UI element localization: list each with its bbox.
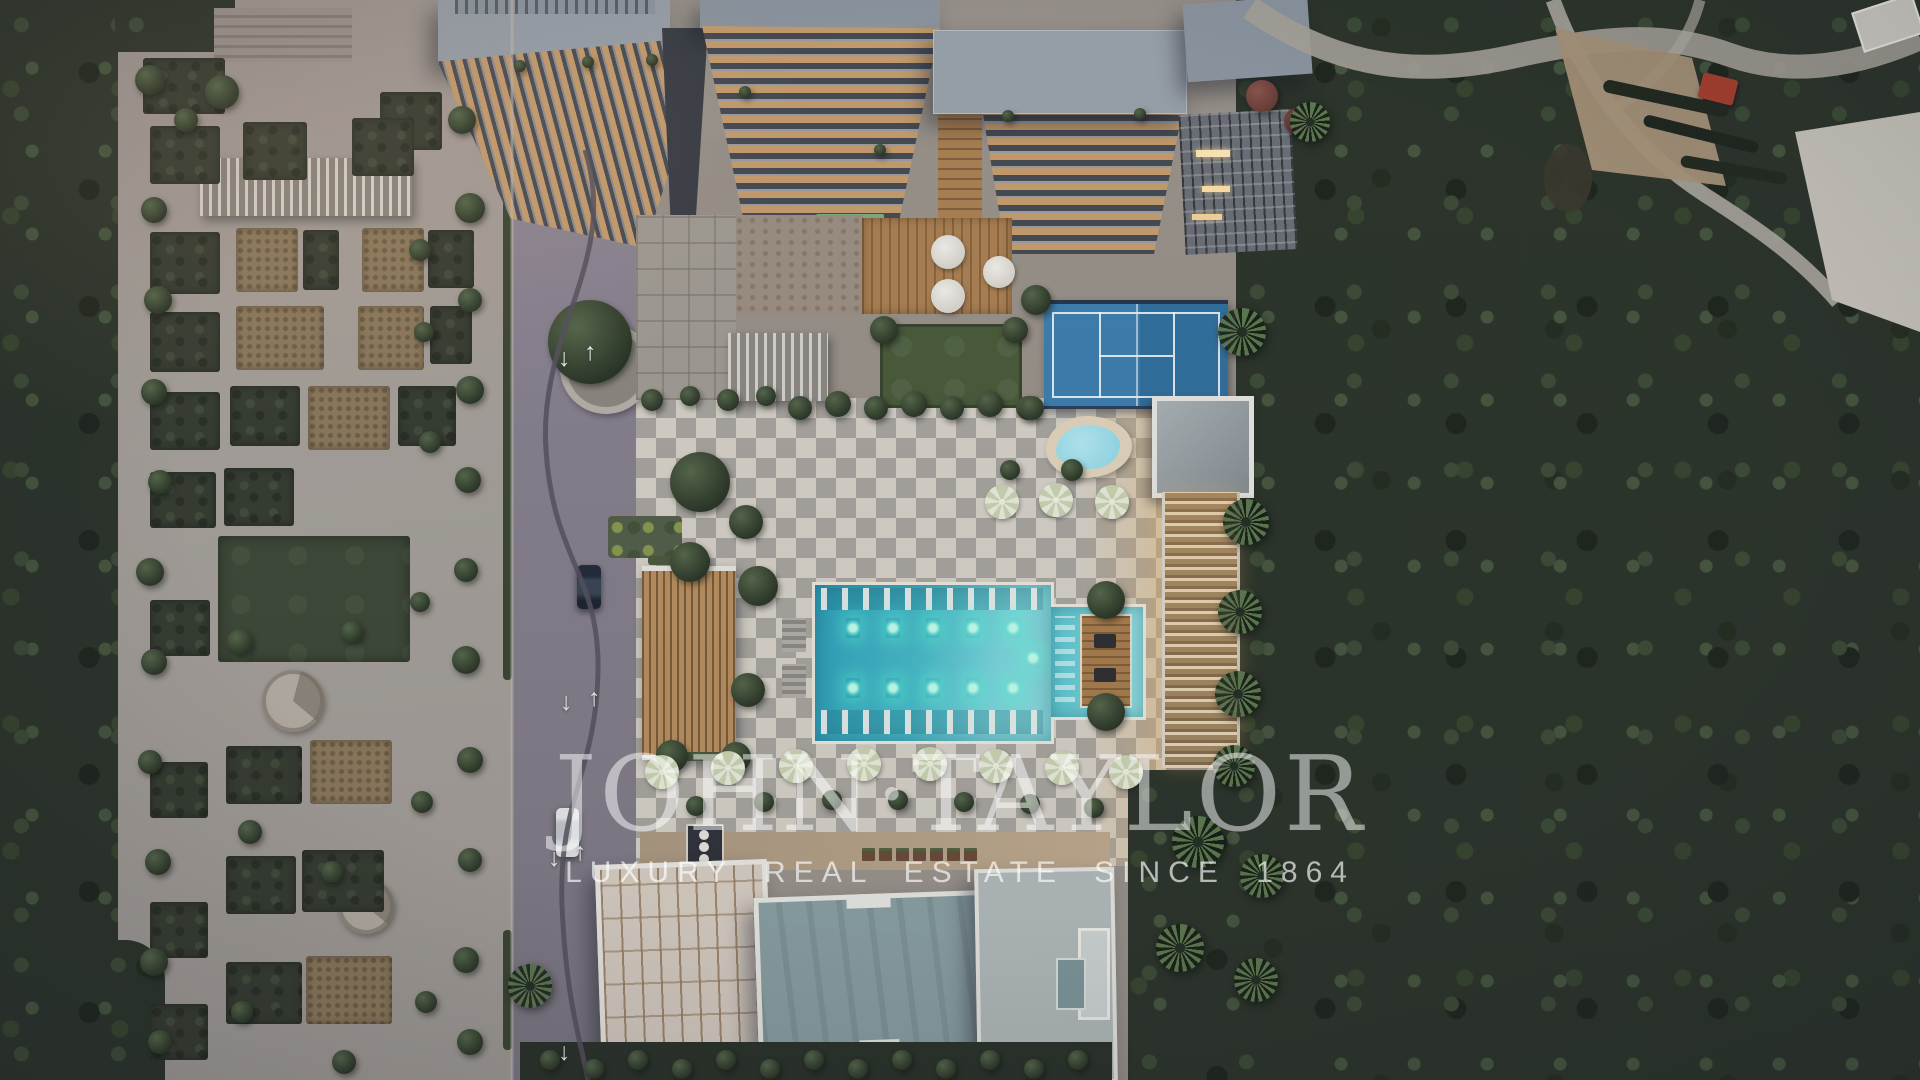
umbrella [985,485,1019,519]
tree [419,431,441,453]
umbrella [779,749,813,783]
planter-bed [150,126,220,184]
tree [680,386,700,406]
tree [453,947,479,973]
tree [458,848,482,872]
palm-tree [1213,745,1255,787]
tree [954,792,974,812]
palm-tree [1218,308,1266,356]
planter-bed [150,232,220,294]
tree [729,505,763,539]
palm-tree [1156,924,1204,972]
hedge-tree [540,1050,560,1070]
tree [1021,285,1051,315]
tree [738,566,778,606]
tree [1084,798,1104,818]
palm-tree [1240,854,1284,898]
hedge-tree [584,1059,604,1079]
aerial-development-photo: ↓↑↓↑↓↑↓ JOHN·TAYLOR LUXURY REAL ESTATE S… [0,0,1920,1080]
balcony-planter [646,54,658,66]
planter-bed [358,306,424,370]
tree [686,796,706,816]
tree [415,991,437,1013]
tree [332,1050,356,1074]
tree [174,108,198,132]
tree [411,791,433,813]
planter-bed [310,740,392,804]
planter-bed [224,468,294,526]
tree [1020,794,1040,814]
planter-bed [226,856,296,914]
tree [788,396,812,420]
tree [414,322,434,342]
landscape-details: ↓↑↓↑↓↑↓ [0,0,1920,1080]
hedge-tree [760,1059,780,1079]
tree [454,558,478,582]
balcony-planter [1134,108,1146,120]
tree [825,391,851,417]
tree [977,391,1003,417]
hedge-tree [716,1050,736,1070]
tree [141,379,167,405]
tree [148,470,172,494]
tree [341,621,363,643]
planter-bed [150,600,210,656]
tree [457,747,483,773]
tree [452,646,480,674]
balcony-planter [514,60,526,72]
road-arrow-marking: ↓ [558,346,578,372]
planter-bed [308,386,390,450]
tree [641,389,663,411]
tree [410,592,430,612]
planter-bed [303,230,339,290]
tree [227,629,253,655]
pool-light [1006,678,1020,698]
tree [1002,317,1028,343]
tree [1020,396,1044,420]
umbrella [979,749,1013,783]
planter-bed [243,122,307,180]
umbrella [645,755,679,789]
tree [456,376,484,404]
pool-light [846,678,860,698]
tree [144,286,172,314]
tree [870,316,898,344]
tree [670,452,730,512]
pool-light [926,678,940,698]
hedge-tree [628,1050,648,1070]
balcony-planter [739,86,751,98]
road-arrow-marking: ↓ [558,1040,578,1066]
tree [231,1001,253,1023]
hedge-tree [848,1059,868,1079]
tree [457,1029,483,1055]
balcony-planter [874,144,886,156]
planter-bed [236,306,324,370]
palm-tree [1218,590,1262,634]
palm-tree [1234,958,1278,1002]
tree [448,106,476,134]
tree [135,65,165,95]
road-arrow-marking: ↓ [548,846,568,872]
planter-box [879,848,892,861]
tree [321,861,343,883]
tree [455,467,481,493]
planter-bed [150,762,208,818]
palm-tree [1172,816,1224,868]
balcony-planter [582,56,594,68]
planter-box [947,848,960,861]
pool-light [966,678,980,698]
tree [756,386,776,406]
tree [141,649,167,675]
planter-bed [306,956,392,1024]
road-arrow-marking: ↑ [588,686,608,712]
planter-box [964,848,977,861]
tree [140,948,168,976]
planter-bed [230,386,300,446]
tree [864,396,888,420]
tree [670,542,710,582]
tree [717,389,739,411]
umbrella [1039,483,1073,517]
tree [754,792,774,812]
planter-bed [226,746,302,804]
hedge-tree [804,1050,824,1070]
umbrella [1109,755,1143,789]
tree [205,75,239,109]
tree [141,197,167,223]
road-arrow-marking: ↑ [574,840,594,866]
hedge-tree [1068,1050,1088,1070]
hedge-tree [936,1059,956,1079]
planter-bed [302,850,384,912]
hedge-tree [1024,1059,1044,1079]
road-arrow-marking: ↓ [560,690,580,716]
planter-bed [150,312,220,372]
tree [940,396,964,420]
hedge-tree [672,1059,692,1079]
pool-light [1026,648,1040,668]
planter-box [896,848,909,861]
tree [731,673,765,707]
palm-tree [1223,499,1269,545]
planter-bed [236,228,298,292]
umbrella [847,747,881,781]
tree [822,790,842,810]
tree [1087,693,1125,731]
umbrella [913,747,947,781]
planter-box [862,848,875,861]
tree [1061,459,1083,481]
road-arrow-marking: ↑ [584,340,604,366]
hedge-tree [980,1050,1000,1070]
palm-tree [1290,102,1330,142]
tree [901,391,927,417]
tree [409,239,431,261]
tree [458,288,482,312]
umbrella [711,751,745,785]
tree [238,820,262,844]
tree [455,193,485,223]
tree [138,750,162,774]
pool-light [1006,618,1020,638]
planter-box [930,848,943,861]
tree [145,849,171,875]
planter-bed [430,306,472,364]
palm-tree [1215,671,1261,717]
planter-box [913,848,926,861]
balcony-planter [1002,110,1014,122]
palm-tree [508,964,552,1008]
umbrella [1045,751,1079,785]
planter-bed [428,230,474,288]
tree [888,790,908,810]
pool-light [886,618,900,638]
tree [1000,460,1020,480]
tree [148,1030,172,1054]
pool-light [886,678,900,698]
umbrella [1095,485,1129,519]
pool-light [846,618,860,638]
tree [1087,581,1125,619]
planter-bed [352,118,414,176]
pool-light [966,618,980,638]
pool-light [926,618,940,638]
tree [136,558,164,586]
hedge-tree [892,1050,912,1070]
